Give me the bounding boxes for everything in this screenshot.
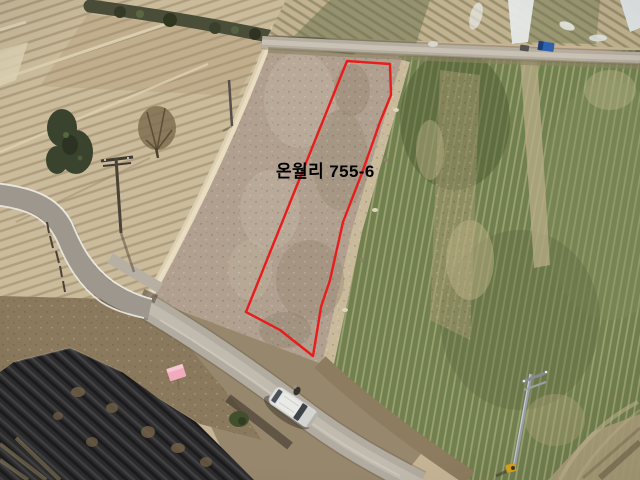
farmland-scene — [0, 0, 640, 480]
parcel-label: 온월리 755-6 — [276, 163, 375, 180]
aerial-photo: 온월리 755-6 — [0, 0, 640, 480]
vignette-overlay — [0, 0, 640, 480]
